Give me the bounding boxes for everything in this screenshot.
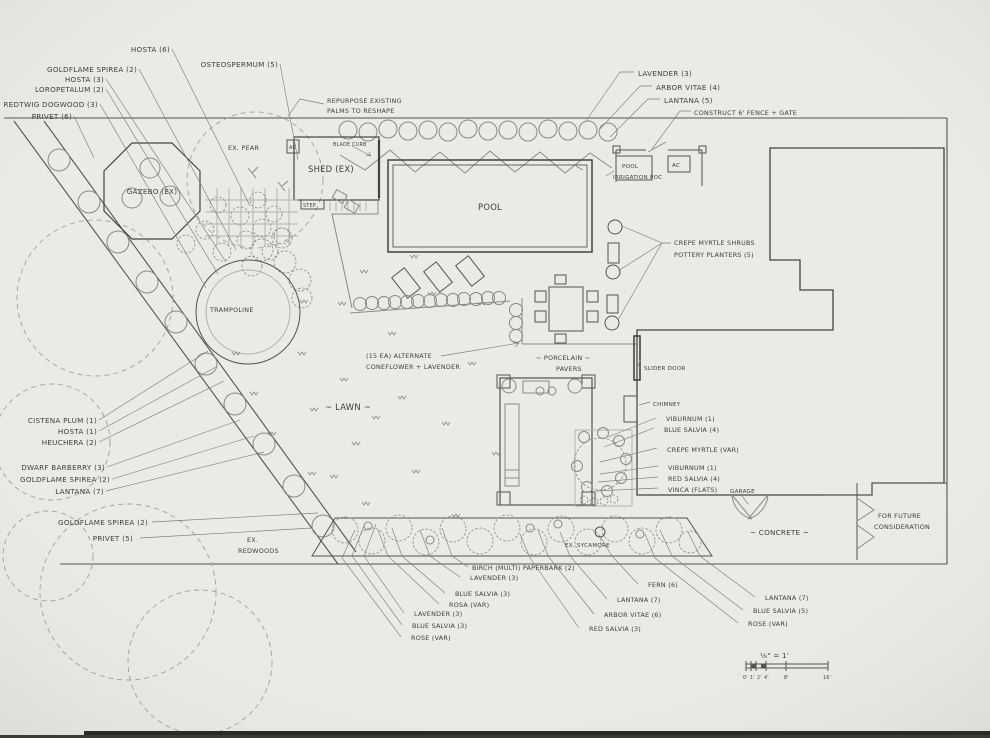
plan-drawing: HOSTA (6) OSTEOSPERMUM (5) GOLDFLAME SPI… <box>0 0 990 738</box>
label-lavender-b2: LAVENDER (3) <box>414 610 462 618</box>
label-porcelain-line2: PAVERS <box>556 365 582 373</box>
scale-tick-4: 4' <box>764 675 769 681</box>
scale-tick-0: 0' <box>743 675 748 681</box>
label-blade-curb: BLADE CURB <box>333 142 367 148</box>
paper-vignette <box>0 0 990 738</box>
label-vinca: VINCA (FLATS) <box>668 486 717 494</box>
label-lantana-7c: LANTANA (7) <box>765 594 809 602</box>
label-redtwig-dogwood: REDTWIG DOGWOOD (3) <box>4 100 98 109</box>
label-goldflame-spirea-c: GOLDFLAME SPIREA (2) <box>58 518 148 527</box>
label-ex-redwoods-line1: EX. <box>247 536 258 544</box>
label-blue-salvia-5: BLUE SALVIA (5) <box>753 607 808 615</box>
label-lantana-top: LANTANA (5) <box>664 96 713 105</box>
label-slider-door: SLIDER DOOR <box>644 366 686 372</box>
label-blue-salvia-b1: BLUE SALVIA (3) <box>455 590 510 598</box>
label-heuchera: HEUCHERA (2) <box>42 438 97 447</box>
label-ex-pear: EX. PEAR <box>228 144 259 152</box>
label-irrigation-poc: IRRIGATION POC <box>613 175 662 181</box>
label-hosta-6: HOSTA (6) <box>131 45 170 54</box>
label-pool-equipment: POOL <box>622 164 639 170</box>
label-goldflame-spirea-b: GOLDFLAME SPIREA (2) <box>20 475 110 484</box>
label-ac-equipment: AC <box>672 163 680 169</box>
label-arbor-vitae-top: ARBOR VITAE (4) <box>656 83 720 92</box>
label-rose-var-a: ROSE (VAR) <box>411 634 451 642</box>
label-red-salvia-3: RED SALVIA (3) <box>589 625 641 633</box>
label-hosta-1: HOSTA (1) <box>58 427 97 436</box>
scale-tick-1: 1' <box>750 675 755 681</box>
label-future-line2: CONSIDERATION <box>874 523 930 531</box>
label-lavender-b1: LAVENDER (3) <box>470 574 518 582</box>
label-arbor-vitae-6: ARBOR VITAE (6) <box>604 611 662 619</box>
label-construct-fence: CONSTRUCT 6' FENCE + GATE <box>694 109 797 117</box>
label-loropetalum: LOROPETALUM (2) <box>35 85 104 94</box>
label-alt-line1: (15 EA) ALTERNATE <box>366 352 432 360</box>
scale-tick-8: 8' <box>784 675 789 681</box>
label-repurpose-line2: PALMS TO RESHAPE <box>327 107 395 115</box>
label-future-line1: FOR FUTURE <box>878 512 921 520</box>
label-porcelain-line1: ~ PORCELAIN ~ <box>536 354 590 362</box>
label-shed: SHED (EX) <box>308 164 354 174</box>
label-fern: FERN (6) <box>648 581 678 589</box>
scale-tick-16: 16' <box>823 675 831 681</box>
label-hosta-3: HOSTA (3) <box>65 75 104 84</box>
scan-edge-artifact <box>0 731 990 738</box>
label-viburnum-a: VIBURNUM (1) <box>666 415 715 423</box>
label-ex-sycamore: EX. SYCAMORE <box>565 543 610 549</box>
label-red-salvia-4: RED SALVIA (4) <box>668 475 720 483</box>
label-viburnum-b: VIBURNUM (1) <box>668 464 717 472</box>
label-chimney: CHIMNEY <box>653 402 681 408</box>
label-crepe-shelf-line2: POTTERY PLANTERS (5) <box>674 251 754 259</box>
label-step: STEP <box>303 203 316 209</box>
scale-tick-2: 2' <box>757 675 762 681</box>
label-goldflame-spirea-a: GOLDFLAME SPIREA (2) <box>47 65 137 74</box>
label-rose-var-b: ROSE (VAR) <box>748 620 788 628</box>
label-gazebo: GAZEBO (EX) <box>127 187 178 196</box>
label-birch-paperbark: BIRCH (MULTI) PAPERBARK (2) <box>472 564 575 572</box>
label-trampoline: TRAMPOLINE <box>209 306 254 314</box>
label-lavender-top: LAVENDER (3) <box>638 69 692 78</box>
label-cistena-plum: CISTENA PLUM (1) <box>28 416 97 425</box>
label-lawn: ~ LAWN ~ <box>325 402 371 412</box>
label-garage: GARAGE <box>730 489 755 495</box>
label-alt-line2: CONEFLOWER + LAVENDER <box>366 363 460 371</box>
label-rosa-var: ROSA (VAR) <box>449 601 489 609</box>
label-osteospermum: OSTEOSPERMUM (5) <box>201 60 278 69</box>
label-crepe-myrtle-var: CREPE MYRTLE (VAR) <box>667 446 739 454</box>
scale-text: ⅛" = 1' <box>760 651 789 660</box>
label-blue-salvia-b2: BLUE SALVIA (3) <box>412 622 467 630</box>
label-lantana-7b: LANTANA (7) <box>617 596 661 604</box>
label-lantana-7a: LANTANA (7) <box>55 487 104 496</box>
label-dwarf-barberry: DWARF BARBERRY (3) <box>21 463 105 472</box>
label-concrete: ~ CONCRETE ~ <box>750 528 809 537</box>
label-repurpose-line1: REPURPOSE EXISTING <box>327 97 402 105</box>
label-privet-5: PRIVET (5) <box>93 534 133 543</box>
label-ex-redwoods-line2: REDWOODS <box>238 547 279 555</box>
label-pool: POOL <box>478 202 502 212</box>
label-blue-salvia-4: BLUE SALVIA (4) <box>664 426 719 434</box>
label-privet-6: PRIVET (6) <box>32 112 72 121</box>
label-crepe-shelf-line1: CREPE MYRTLE SHRUBS <box>674 239 755 247</box>
landscape-plan-sheet: HOSTA (6) OSTEOSPERMUM (5) GOLDFLAME SPI… <box>0 0 990 738</box>
label-ac-small: AC <box>289 145 296 151</box>
